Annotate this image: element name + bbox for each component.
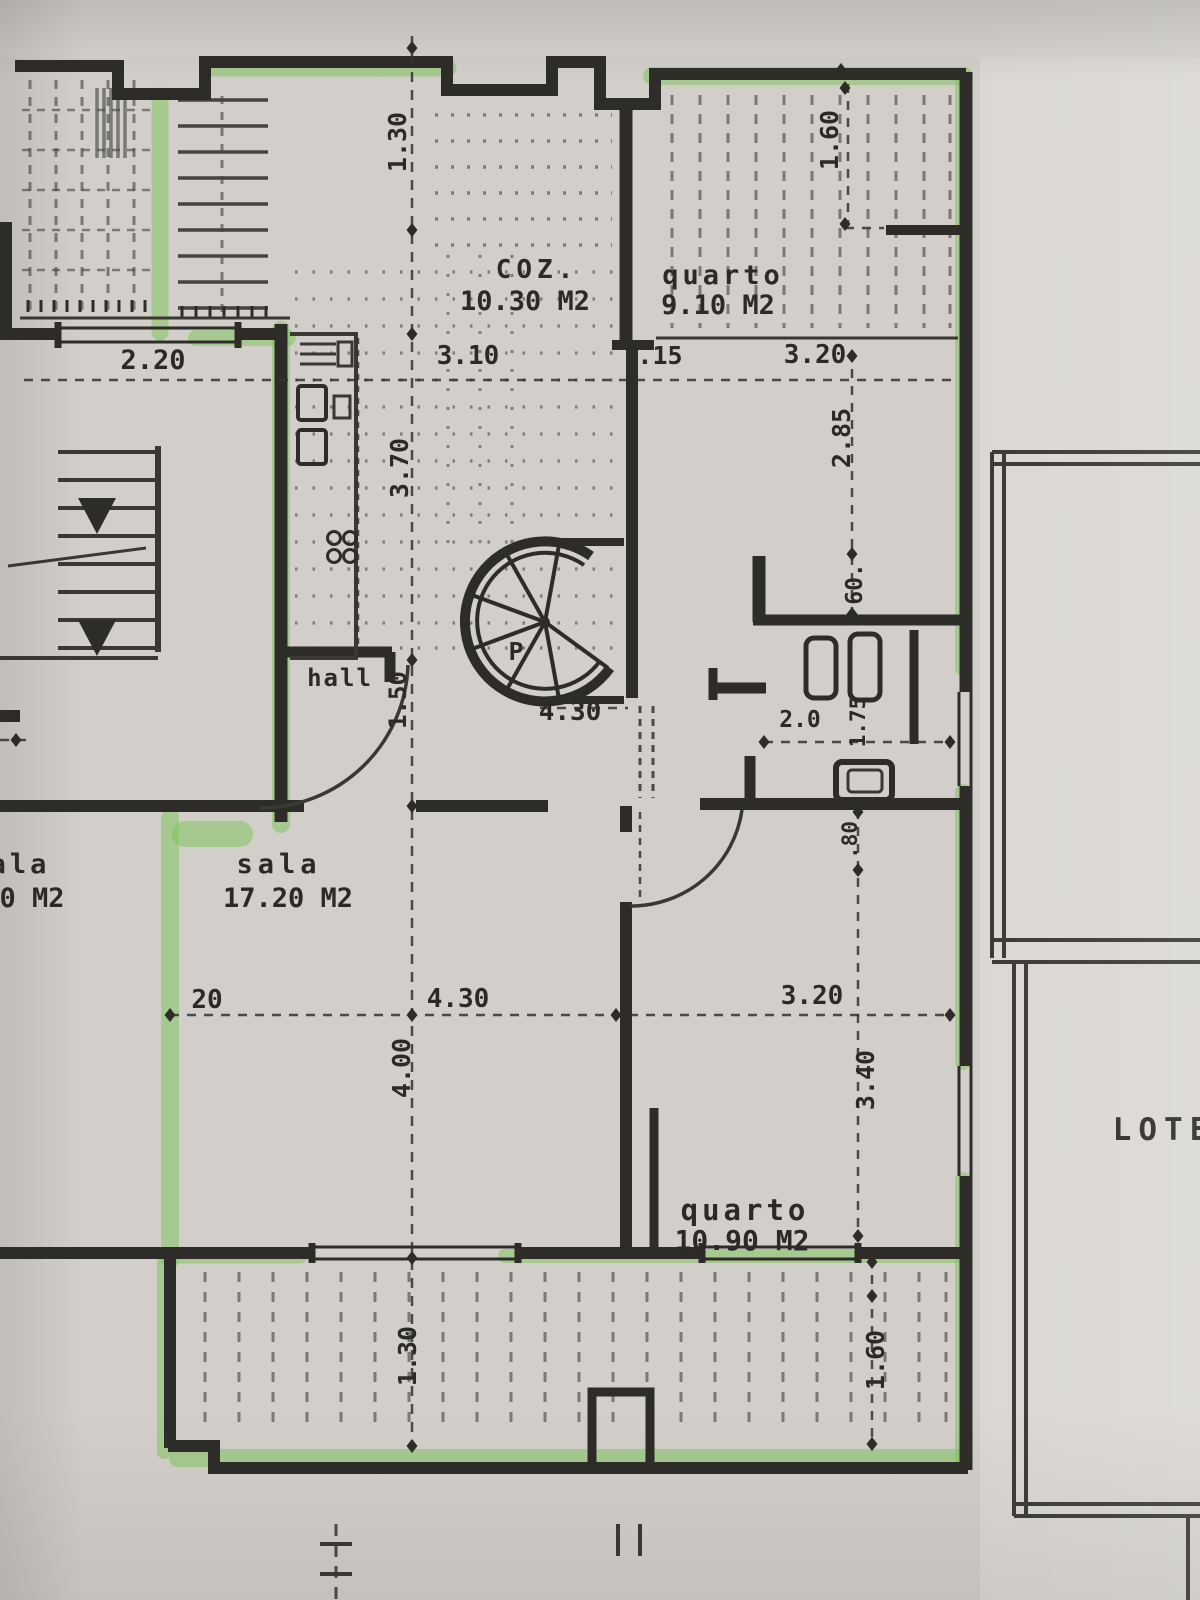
dim-400: 4.00 — [387, 1038, 416, 1098]
lot-label: LOTE — [1113, 1112, 1200, 1148]
dim-430-sala: 4.30 — [427, 984, 490, 1014]
dim-340: 3.40 — [851, 1050, 880, 1110]
dim-160-top: 1.60 — [815, 110, 844, 170]
dim-130-top: 1.30 — [383, 112, 412, 172]
dim-150: 1.50 — [384, 671, 412, 729]
dim-60: 60. — [842, 563, 868, 605]
dim-320-right: 3.20 — [781, 981, 844, 1011]
quarto2-area: 10.90 M2 — [675, 1224, 810, 1257]
sala-left-name: ala — [0, 849, 50, 880]
dim-285: 2.85 — [827, 408, 856, 468]
kitchen-name: COZ. — [496, 255, 579, 285]
quarto1-name: quarto — [662, 260, 784, 291]
hall-label: hall — [307, 664, 373, 692]
dim-370: 3.70 — [385, 438, 414, 498]
sala-area: 17.20 M2 — [223, 883, 353, 914]
dim-310: 3.10 — [437, 341, 500, 371]
dim-160-bottom: 1.60 — [861, 1330, 890, 1390]
stair-label: P — [508, 637, 523, 666]
kitchen-area: 10.30 M2 — [460, 286, 590, 317]
dim-130-bottom: 1.30 — [393, 1326, 422, 1386]
dim-320-top: 3.20 — [784, 340, 847, 370]
quarto2-name: quarto — [681, 1193, 810, 1227]
dim-20: 20 — [191, 985, 222, 1015]
dim-15: .15 — [637, 341, 682, 370]
sala-left-area: 0 M2 — [0, 883, 65, 914]
floorplan-photo: P — [0, 0, 1200, 1600]
dim-430-mid: 4.30 — [539, 697, 602, 727]
floor-plan-svg: P — [0, 0, 1200, 1600]
dim-220: 2.20 — [120, 345, 185, 376]
dim-80: .80 — [838, 821, 862, 859]
dim-175: 1.75 — [846, 697, 870, 748]
quarto1-area: 9.10 M2 — [661, 290, 775, 321]
sala-name: sala — [236, 849, 321, 880]
dim-20-small: 2.0 — [779, 707, 821, 733]
